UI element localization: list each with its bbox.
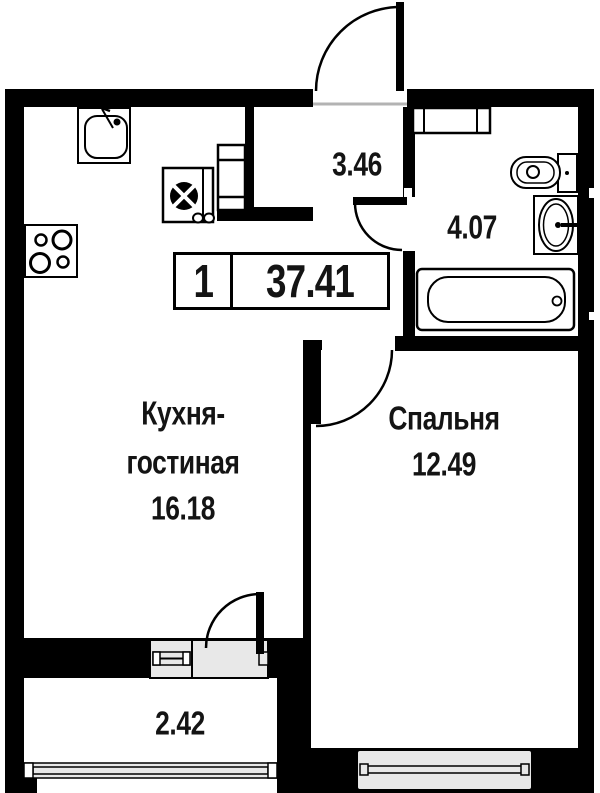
bathroom-door-leaf xyxy=(353,197,407,205)
kitchen-living-area-label: 16.18 xyxy=(151,492,215,525)
bathtub-icon xyxy=(417,269,574,330)
vent-shaft-icon xyxy=(413,108,490,133)
wall-top-left xyxy=(5,89,313,107)
balcony-glazing-rail xyxy=(24,763,277,778)
snowflake-rosette xyxy=(170,182,198,210)
toilet-icon xyxy=(511,154,577,192)
rooms-count-cell: 1 xyxy=(176,255,233,307)
bathroom-area-label: 4.07 xyxy=(447,211,497,244)
wall-left xyxy=(5,89,24,793)
bathroom-door xyxy=(353,197,407,250)
balcony-area-label: 2.42 xyxy=(155,707,205,740)
apartment-summary-badge: 1 37.41 xyxy=(173,252,390,310)
wall-bathroom-bottom xyxy=(395,336,594,351)
kitchen-living-name-line1: Кухня- xyxy=(141,397,225,430)
bathroom-door-swing-arc xyxy=(355,203,402,250)
wall-top-right xyxy=(407,89,594,107)
bedroom-door-leaf xyxy=(311,344,321,424)
balcony-door-leaf xyxy=(256,592,264,654)
entrance-door xyxy=(313,2,407,104)
kitchen-window-icon xyxy=(153,652,190,665)
floor-plan-drawing xyxy=(0,0,600,793)
kitchen-living-name-line2: гостиная xyxy=(126,446,239,479)
wall-hallway-left xyxy=(245,107,254,220)
washbasin-icon xyxy=(534,196,578,254)
bedroom-door-swing-arc xyxy=(316,350,392,426)
wall-joint-notch xyxy=(589,188,597,198)
floor-plan: 3.46 4.07 Кухня- гостиная 16.18 Спальня … xyxy=(0,0,600,793)
refrigerator-icon xyxy=(163,168,214,223)
stove-icon xyxy=(25,225,77,277)
total-area-cell: 37.41 xyxy=(233,255,387,307)
wall-joint-notch xyxy=(589,312,597,320)
bedroom-area-label: 12.49 xyxy=(412,448,476,481)
kitchen-sink-icon xyxy=(78,106,130,163)
hallway-area-label: 3.46 xyxy=(332,148,382,181)
walls xyxy=(5,89,594,793)
rooms-count-value: 1 xyxy=(193,258,213,304)
wall-joint-notch xyxy=(404,188,412,197)
wall-bathroom-left-lower xyxy=(403,251,415,348)
entrance-door-leaf xyxy=(396,2,404,91)
bedroom-window xyxy=(357,750,532,790)
bedroom-door xyxy=(311,344,392,426)
wardrobe-icon xyxy=(218,145,245,210)
total-area-value: 37.41 xyxy=(266,258,354,304)
bedroom-name-label: Спальня xyxy=(388,402,499,435)
wall-balcony-foot xyxy=(24,778,37,793)
entrance-door-swing-arc xyxy=(316,7,400,91)
wall-balcony-right xyxy=(277,678,311,750)
balcony-window-door-block xyxy=(150,640,268,678)
